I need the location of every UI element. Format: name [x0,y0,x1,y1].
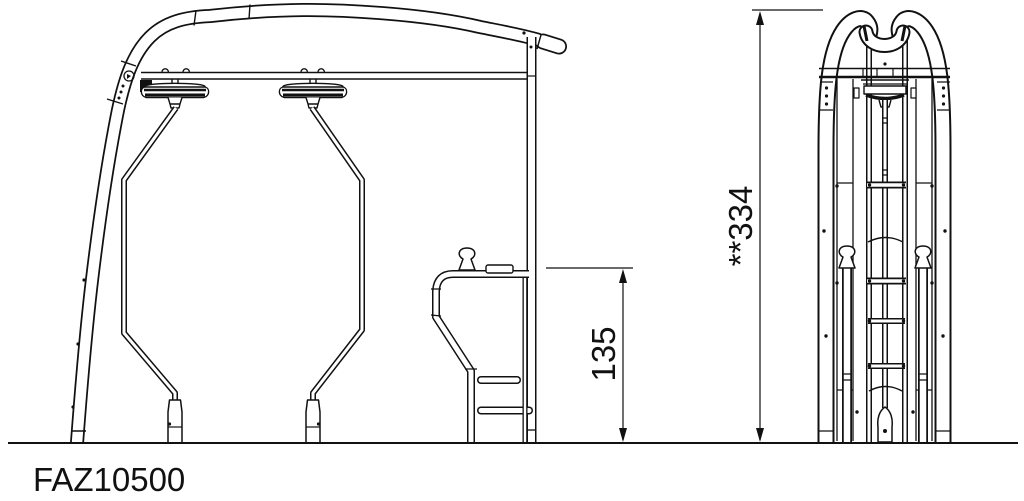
ground-anchor [878,407,892,442]
ground-anchor [306,400,320,443]
dimension-334-label: **334 [722,186,759,267]
main-post [527,37,536,443]
product-code-label: FAZ10500 [33,461,185,498]
table-panel [486,265,513,273]
roof-end-cap [543,42,559,47]
technical-drawing-page: 135 **334 FAZ10500 [0,0,1024,501]
dimension-135-label: 135 [585,326,622,381]
ground-anchor [168,400,182,443]
drawing-canvas: 135 **334 FAZ10500 [0,0,1024,501]
